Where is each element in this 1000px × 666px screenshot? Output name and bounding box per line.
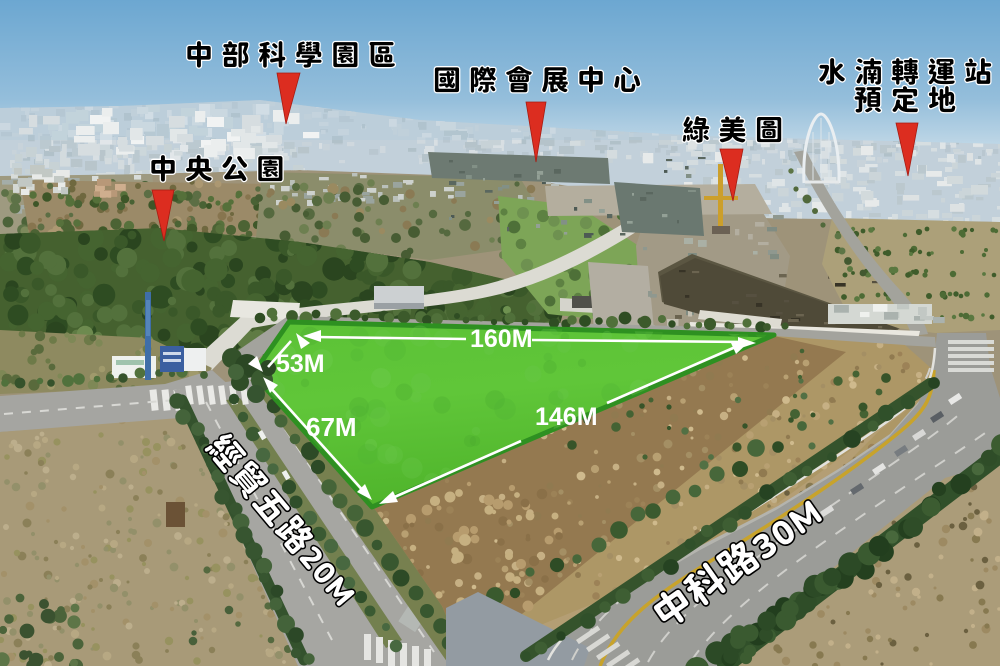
- svg-text:146M: 146M: [535, 403, 598, 431]
- svg-text:160M: 160M: [470, 325, 533, 353]
- svg-text:53M: 53M: [276, 350, 325, 378]
- svg-text:67M: 67M: [306, 412, 357, 442]
